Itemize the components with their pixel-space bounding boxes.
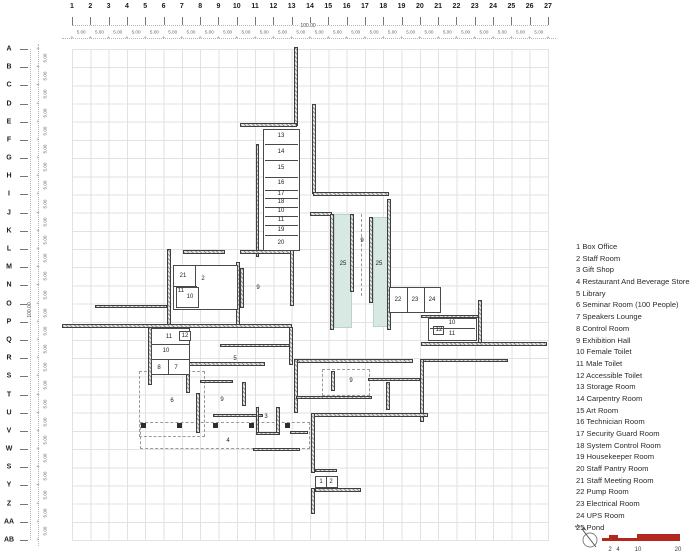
row-tick	[20, 67, 28, 68]
row-letter: Z	[7, 500, 11, 507]
row-dim-label: 5.00	[43, 363, 48, 372]
structural-column	[213, 423, 218, 428]
row-tick	[20, 540, 28, 541]
col-tick	[255, 17, 256, 25]
partition-wall	[407, 288, 408, 312]
row-dim-label: 5.00	[43, 381, 48, 390]
col-dim-label: 5.00	[333, 30, 342, 35]
col-dim-label: 5.00	[296, 30, 305, 35]
wall-segment	[368, 378, 420, 381]
wall-segment	[310, 212, 332, 216]
scale-bar-segment	[609, 535, 618, 541]
row-dim-label: 5.00	[43, 126, 48, 135]
row-dim-label: 5.00	[43, 436, 48, 445]
row-tick	[20, 122, 28, 123]
col-dim-label: 5.00	[351, 30, 360, 35]
row-tick	[20, 85, 28, 86]
col-number: 24	[489, 3, 497, 10]
row-tick	[20, 249, 28, 250]
scale-bar-label: 20	[675, 547, 682, 553]
col-tick	[438, 17, 439, 25]
room-label-7: 7	[174, 365, 177, 371]
legend-item: 21 Staff Meeting Room	[576, 475, 690, 487]
room-label-10: 10	[449, 320, 456, 326]
room-label-25: 25	[340, 261, 347, 267]
row-letter: S	[7, 373, 12, 380]
wall-segment	[313, 413, 428, 417]
row-letter: D	[6, 100, 11, 107]
scale-bar-segment	[602, 538, 609, 541]
row-letter: B	[6, 64, 11, 71]
row-tick	[20, 104, 28, 105]
legend-item: 18 System Control Room	[576, 440, 690, 452]
col-dim-label: 5.00	[370, 30, 379, 35]
row-tick	[20, 485, 28, 486]
col-tick	[548, 17, 549, 25]
wall-segment	[183, 362, 265, 366]
wall-segment	[369, 217, 373, 303]
wall-segment	[478, 300, 482, 344]
room-label-3: 3	[264, 414, 267, 420]
wall-segment	[290, 250, 294, 306]
legend-item: 22 Pump Room	[576, 486, 690, 498]
scale-bar-segment	[637, 534, 680, 541]
wall-segment	[421, 342, 547, 346]
col-dim-label: 5.00	[479, 30, 488, 35]
col-dim-label: 5.00	[315, 30, 324, 35]
row-dim-label: 5.00	[43, 272, 48, 281]
partition-wall	[152, 359, 189, 360]
room-label-11: 11	[278, 217, 284, 223]
dashed-outline	[322, 369, 370, 396]
wall-segment	[315, 488, 361, 492]
row-letter: T	[7, 391, 11, 398]
row-letter: F	[7, 136, 11, 143]
row-tick	[20, 194, 28, 195]
partition-wall	[174, 286, 197, 287]
floor-plan-page: 1+5.002+5.003+5.004+5.005+5.006+5.007+5.…	[0, 0, 700, 557]
structural-column	[177, 423, 182, 428]
row-letter: L	[7, 246, 11, 253]
row-dim-label: 5.00	[43, 163, 48, 172]
col-number: 12	[269, 3, 277, 10]
north-arrow-icon: N	[572, 518, 606, 554]
row-letter: N	[6, 282, 11, 289]
legend-item: 12 Accessible Toilet	[576, 370, 690, 382]
wall-segment	[294, 359, 413, 363]
col-tick	[383, 17, 384, 25]
room-label-12: 12	[436, 327, 443, 333]
wall-segment	[296, 396, 372, 399]
col-number: 11	[251, 3, 258, 10]
wall-segment	[220, 344, 290, 347]
row-tick	[20, 158, 28, 159]
dim-line-cols	[62, 38, 556, 39]
col-tick	[530, 17, 531, 25]
wall-segment	[290, 431, 308, 434]
wall-segment	[386, 382, 390, 410]
row-dim-label: 5.00	[43, 308, 48, 317]
wall-segment	[256, 144, 259, 257]
row-dim-label: 5.00	[43, 454, 48, 463]
row-letter: P	[7, 318, 12, 325]
wall-segment	[312, 104, 316, 194]
legend-item: 11 Male Toilet	[576, 358, 690, 370]
row-dim-label: 5.00	[43, 490, 48, 499]
row-letter: AB	[4, 536, 14, 543]
total-height-label: 100.00	[27, 301, 33, 318]
col-tick	[237, 17, 238, 25]
wall-segment	[420, 359, 508, 362]
room-label-15: 15	[278, 165, 285, 171]
partition-wall	[265, 225, 298, 226]
wall-segment	[95, 305, 167, 308]
col-tick	[292, 17, 293, 25]
legend-item: 7 Speakers Lounge	[576, 311, 690, 323]
col-dim-label: 5.00	[187, 30, 196, 35]
row-dim-label: 5.00	[43, 290, 48, 299]
row-tick	[20, 176, 28, 177]
row-tick	[20, 340, 28, 341]
col-number: 17	[361, 3, 369, 10]
room-label-9: 9	[349, 378, 352, 384]
room-label-10: 10	[278, 208, 285, 214]
col-number: 4	[125, 3, 129, 10]
col-tick	[218, 17, 219, 25]
col-dim-label: 5.00	[150, 30, 159, 35]
col-number: 16	[343, 3, 351, 10]
room-label-24: 24	[429, 297, 436, 303]
col-dim-label: 5.00	[461, 30, 470, 35]
row-tick	[20, 395, 28, 396]
legend-item: 2 Staff Room	[576, 253, 690, 265]
row-letter: A	[6, 46, 11, 53]
row-dim-label: 5.00	[43, 54, 48, 63]
col-number: 14	[306, 3, 314, 10]
legend-item: 1 Box Office	[576, 241, 690, 253]
col-tick	[365, 17, 366, 25]
room-label-12: 12	[182, 333, 189, 339]
row-tick	[20, 213, 28, 214]
wall-segment	[253, 448, 300, 451]
col-number: 27	[544, 3, 552, 10]
wall-segment	[183, 250, 225, 254]
partition-wall	[424, 288, 425, 312]
col-tick	[127, 17, 128, 25]
row-dim-label: 5.00	[43, 472, 48, 481]
row-dim-label: 5.00	[43, 90, 48, 99]
col-tick	[273, 17, 274, 25]
col-number: 7	[180, 3, 184, 10]
wall-segment	[330, 214, 334, 330]
partition-wall	[152, 344, 189, 345]
legend-item: 16 Technician Room	[576, 416, 690, 428]
row-dim-label: 5.00	[43, 526, 48, 535]
scale-bar-label: 10	[635, 547, 642, 553]
col-tick	[420, 17, 421, 25]
room-label-8: 8	[157, 365, 160, 371]
partition-wall	[265, 177, 298, 178]
row-dim-label: 5.00	[43, 145, 48, 154]
col-tick	[200, 17, 201, 25]
wall-segment	[294, 359, 298, 413]
room-legend: 1 Box Office2 Staff Room3 Gift Shop4 Res…	[576, 241, 690, 533]
room-label-9: 9	[256, 285, 259, 291]
legend-item: 3 Gift Shop	[576, 264, 690, 276]
col-dim-label: 5.00	[260, 30, 269, 35]
structural-column	[249, 423, 254, 428]
col-number: 15	[324, 3, 332, 10]
col-dim-label: 5.00	[534, 30, 543, 35]
col-number: 22	[453, 3, 461, 10]
col-number: 5	[143, 3, 147, 10]
col-tick	[402, 17, 403, 25]
room-label-10: 10	[187, 294, 194, 300]
col-number: 1	[70, 3, 74, 10]
col-dim-label: 5.00	[388, 30, 397, 35]
col-dim-label: 5.00	[95, 30, 104, 35]
legend-item: 10 Female Toilet	[576, 346, 690, 358]
col-tick	[164, 17, 165, 25]
row-letter: M	[6, 264, 12, 271]
row-letter: V	[7, 427, 12, 434]
col-tick	[511, 17, 512, 25]
partition-wall	[168, 360, 169, 374]
row-tick	[20, 49, 28, 50]
col-dim-label: 5.00	[443, 30, 452, 35]
col-number: 8	[198, 3, 202, 10]
col-tick	[347, 17, 348, 25]
room-label-20: 20	[278, 240, 285, 246]
legend-item: 13 Storage Room	[576, 381, 690, 393]
row-tick	[20, 358, 28, 359]
col-dim-label: 5.00	[168, 30, 177, 35]
row-letter: Y	[7, 482, 12, 489]
row-letter: W	[6, 446, 13, 453]
row-tick	[20, 267, 28, 268]
partition-wall	[326, 477, 327, 487]
room-label-10: 10	[163, 348, 170, 354]
legend-item: 23 Electrical Room	[576, 498, 690, 510]
row-letter: S	[7, 464, 12, 471]
col-dim-label: 5.00	[278, 30, 287, 35]
row-dim-label: 5.00	[43, 399, 48, 408]
row-dim-label: 5.00	[43, 235, 48, 244]
col-tick	[90, 17, 91, 25]
room-label-17: 17	[278, 191, 285, 197]
row-letter: C	[6, 82, 11, 89]
row-dim-label: 5.00	[43, 217, 48, 226]
row-letter: O	[6, 300, 11, 307]
room-label-21: 21	[180, 273, 187, 279]
north-label: N	[574, 524, 581, 531]
row-tick	[20, 231, 28, 232]
room-label-13: 13	[278, 133, 285, 139]
room-label-16: 16	[278, 180, 285, 186]
col-number: 9	[217, 3, 221, 10]
row-letter: I	[8, 191, 10, 198]
room-label-11: 11	[449, 331, 455, 337]
structural-column	[141, 423, 146, 428]
room-label-1: 1	[319, 479, 322, 485]
col-tick	[72, 17, 73, 25]
col-dim-label: 5.00	[425, 30, 434, 35]
partition-wall	[265, 160, 298, 161]
room-label-9: 9	[220, 397, 223, 403]
legend-item: 15 Art Room	[576, 405, 690, 417]
wall-segment	[240, 123, 297, 127]
col-dim-label: 5.00	[77, 30, 86, 35]
col-number: 3	[107, 3, 111, 10]
wall-segment	[256, 432, 280, 435]
total-width-label: 100.00	[299, 23, 316, 29]
wall-segment	[315, 469, 337, 472]
col-tick	[109, 17, 110, 25]
row-letter: G	[6, 155, 11, 162]
wall-segment	[294, 47, 298, 126]
wall-segment	[311, 488, 315, 514]
wall-segment	[200, 380, 233, 383]
col-number: 6	[162, 3, 166, 10]
room-label-14: 14	[278, 149, 285, 155]
row-dim-label: 5.00	[43, 326, 48, 335]
room-label-19: 19	[278, 227, 285, 233]
row-letter: J	[7, 209, 11, 216]
col-number: 20	[416, 3, 424, 10]
col-number: 19	[398, 3, 406, 10]
row-tick	[20, 467, 28, 468]
legend-item: 4 Restaurant And Beverage Store	[576, 276, 690, 288]
dim-line-rows-v	[38, 44, 39, 546]
room-label-6: 6	[170, 398, 173, 404]
col-tick	[328, 17, 329, 25]
legend-item: 6 Seminar Room (100 People)	[576, 299, 690, 311]
row-tick	[20, 140, 28, 141]
col-tick	[145, 17, 146, 25]
wall-segment	[350, 214, 354, 292]
room-label-11: 11	[166, 334, 172, 340]
row-tick	[20, 522, 28, 523]
col-dim-label: 5.00	[241, 30, 250, 35]
legend-item: 17 Security Guard Room	[576, 428, 690, 440]
wall-segment	[242, 382, 246, 406]
legend-item: 5 Library	[576, 288, 690, 300]
row-letter: U	[6, 409, 11, 416]
partition-wall	[195, 266, 196, 287]
col-number: 21	[434, 3, 442, 10]
room-label-4: 4	[226, 438, 229, 444]
col-dim-label: 5.00	[498, 30, 507, 35]
wall-segment	[240, 268, 244, 308]
scale-bar-label: 2	[608, 547, 611, 553]
legend-item: 14 Carpentry Room	[576, 393, 690, 405]
col-number: 13	[288, 3, 296, 10]
room-label-23: 23	[412, 297, 419, 303]
row-dim-label: 5.00	[43, 72, 48, 81]
col-dim-label: 5.00	[205, 30, 214, 35]
wall-segment	[167, 249, 171, 328]
room-label-5: 5	[233, 356, 236, 362]
row-tick	[20, 431, 28, 432]
row-dim-label: 5.00	[43, 508, 48, 517]
col-tick	[475, 17, 476, 25]
structural-column	[285, 423, 290, 428]
col-dim-label: 5.00	[406, 30, 415, 35]
row-tick	[20, 413, 28, 414]
legend-item: 8 Control Room	[576, 323, 690, 335]
row-tick	[20, 376, 28, 377]
room-label-2: 2	[329, 479, 332, 485]
wall-segment	[313, 192, 389, 196]
legend-item: 20 Staff Pantry Room	[576, 463, 690, 475]
col-number: 25	[507, 3, 515, 10]
row-letter: R	[6, 355, 11, 362]
wall-segment	[276, 407, 280, 434]
row-dim-label: 5.00	[43, 345, 48, 354]
col-dim-label: 5.00	[223, 30, 232, 35]
row-dim-label: 5.00	[43, 181, 48, 190]
wall-segment	[311, 413, 315, 473]
col-dim-label: 5.00	[132, 30, 141, 35]
row-dim-label: 5.00	[43, 254, 48, 263]
col-tick	[493, 17, 494, 25]
room-label-18: 18	[278, 199, 285, 205]
row-tick	[20, 449, 28, 450]
room-label-9: 9	[360, 238, 363, 244]
wall-segment	[331, 371, 335, 391]
col-dim-label: 5.00	[113, 30, 122, 35]
col-number: 18	[379, 3, 387, 10]
wall-segment	[256, 407, 259, 434]
col-dim-label: 5.00	[516, 30, 525, 35]
row-tick	[20, 322, 28, 323]
partition-wall	[265, 144, 298, 145]
col-tick	[182, 17, 183, 25]
partition-wall	[265, 235, 298, 236]
legend-item: 19 Housekeeper Room	[576, 451, 690, 463]
dashed-corridor-line	[361, 214, 362, 296]
room-label-2: 2	[201, 276, 204, 282]
col-number: 26	[526, 3, 534, 10]
row-letter: H	[6, 173, 11, 180]
room-label-25: 25	[376, 261, 383, 267]
col-number: 2	[88, 3, 92, 10]
wall-segment	[196, 393, 200, 433]
col-number: 10	[233, 3, 241, 10]
dim-line-total-v	[30, 49, 31, 540]
col-number: 23	[471, 3, 479, 10]
room-label-22: 22	[395, 297, 402, 303]
row-dim-label: 5.00	[43, 417, 48, 426]
col-tick	[456, 17, 457, 25]
row-letter: Q	[6, 336, 11, 343]
room-label-11: 11	[178, 288, 184, 294]
row-letter: K	[6, 227, 11, 234]
scale-bar-label: 4	[616, 547, 619, 553]
row-tick	[20, 285, 28, 286]
row-dim-label: 5.00	[43, 199, 48, 208]
scale-bar-segment	[618, 538, 637, 541]
row-tick	[20, 504, 28, 505]
row-letter: E	[7, 118, 12, 125]
row-dim-label: 5.00	[43, 108, 48, 117]
legend-item: 9 Exhibition Hall	[576, 335, 690, 347]
row-letter: AA	[4, 518, 14, 525]
